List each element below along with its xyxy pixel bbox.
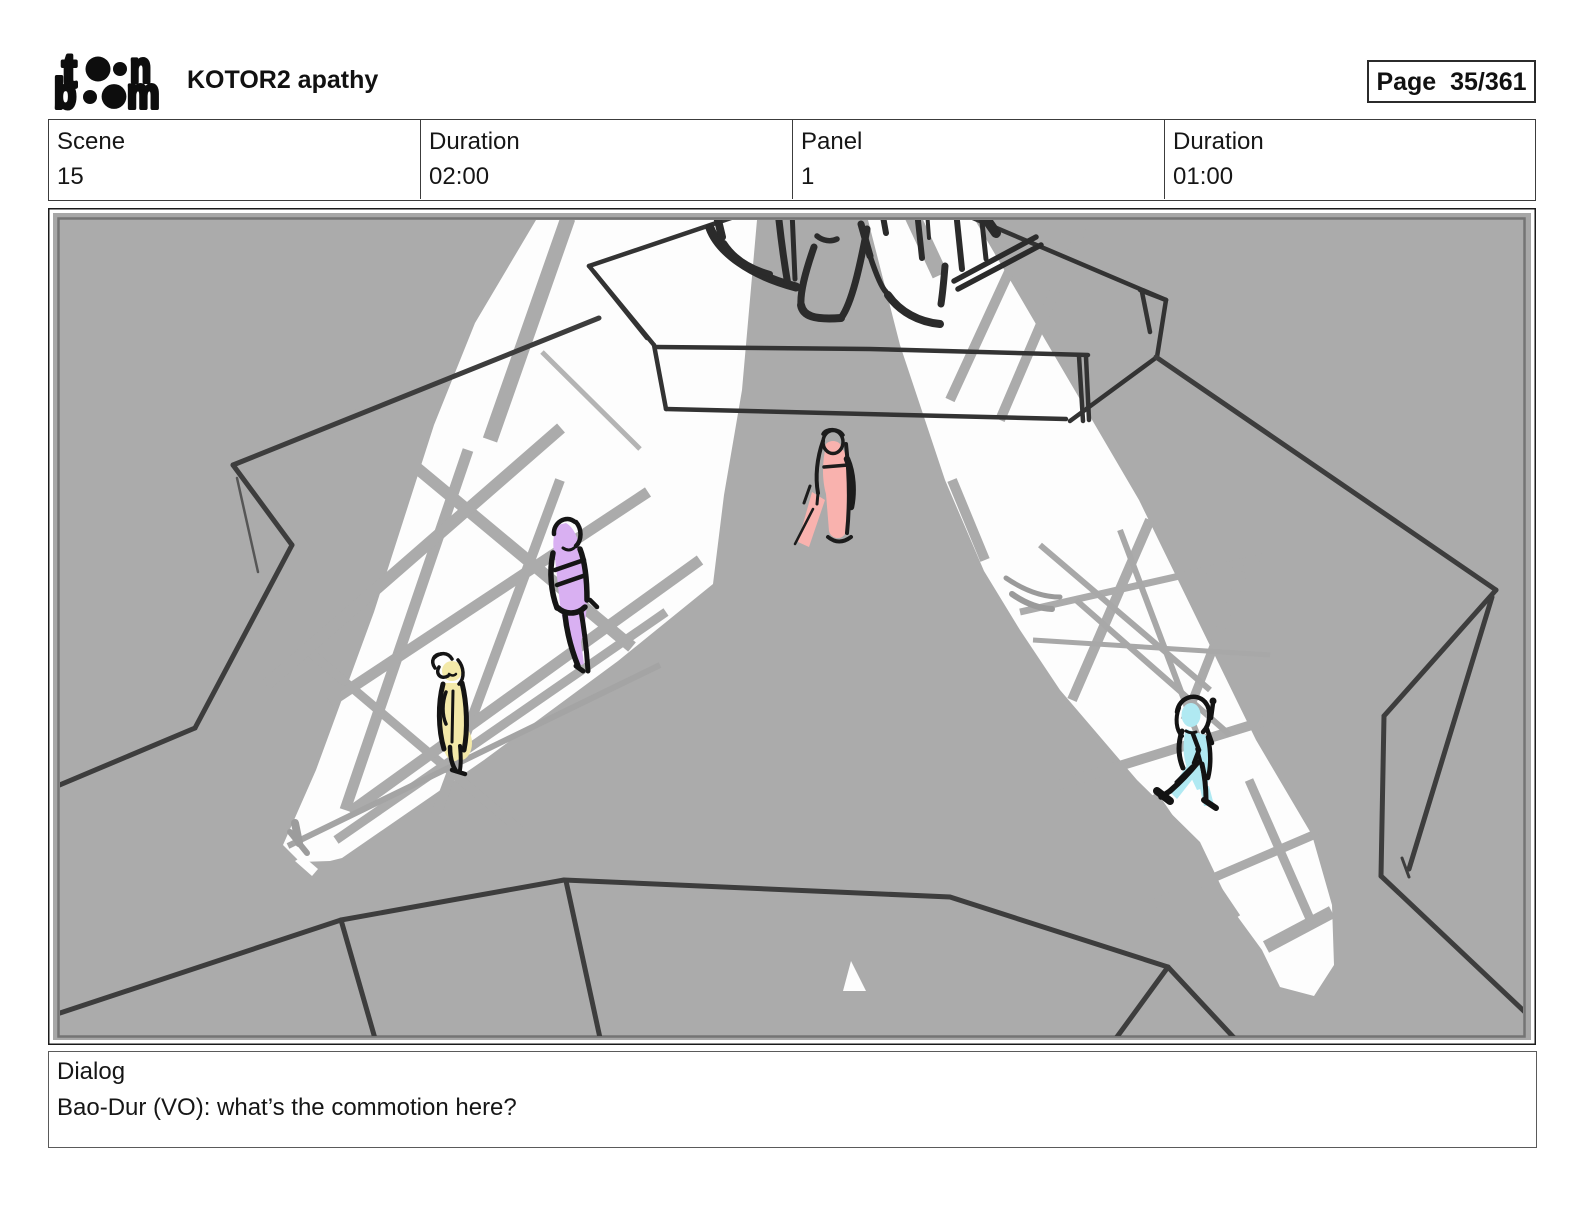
- svg-text:m: m: [127, 70, 160, 114]
- svg-text:b: b: [54, 70, 76, 114]
